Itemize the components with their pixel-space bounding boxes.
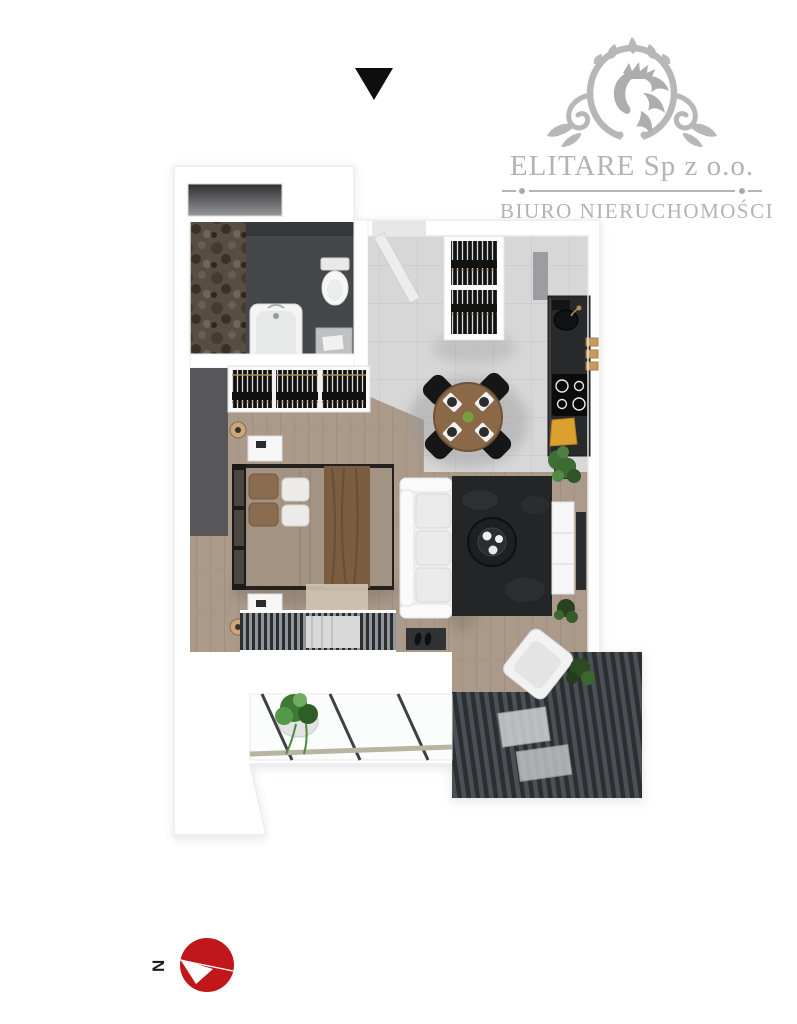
company-tagline: BIURO NIERUCHOMOŚCI — [500, 199, 764, 224]
logo-divider — [502, 185, 762, 197]
tv-sideboard — [552, 502, 574, 594]
window-band — [240, 610, 396, 653]
page-canvas: ELITARE Sp z o.o. BIURO NIERUCHOMOŚCI N — [0, 0, 797, 1024]
bathroom-right-wall — [354, 220, 368, 370]
storage-niche — [188, 184, 282, 216]
sofa — [400, 478, 452, 618]
north-compass: N — [146, 928, 250, 1012]
induction-hob — [552, 374, 588, 416]
toilet — [321, 258, 349, 305]
bathroom-top-wall — [246, 222, 366, 236]
stone-accent-wall — [190, 222, 246, 354]
bathroom — [190, 220, 368, 386]
agency-logo: ELITARE Sp z o.o. BIURO NIERUCHOMOŚCI — [500, 33, 764, 224]
kitchen-side-wall — [533, 252, 548, 300]
hall-wardrobe — [432, 236, 516, 364]
location-marker-icon — [355, 68, 393, 100]
nightstand-top — [248, 436, 282, 461]
wall-tv — [576, 512, 586, 590]
coffee-table — [468, 518, 516, 566]
compass-north-label: N — [149, 960, 168, 972]
bed — [232, 464, 394, 590]
bedroom-accent-wall — [190, 368, 228, 536]
cutting-board — [550, 418, 577, 446]
company-name: ELITARE Sp z o.o. — [500, 151, 764, 181]
lion-crest-icon — [547, 33, 717, 147]
doormat — [406, 628, 446, 650]
coffee-machine — [552, 300, 570, 310]
entrance-opening — [372, 221, 426, 236]
table-plant — [463, 412, 474, 423]
bedroom-wardrobe — [228, 366, 370, 412]
bed-throw — [324, 466, 370, 588]
bedside-lamp-top — [230, 422, 246, 438]
